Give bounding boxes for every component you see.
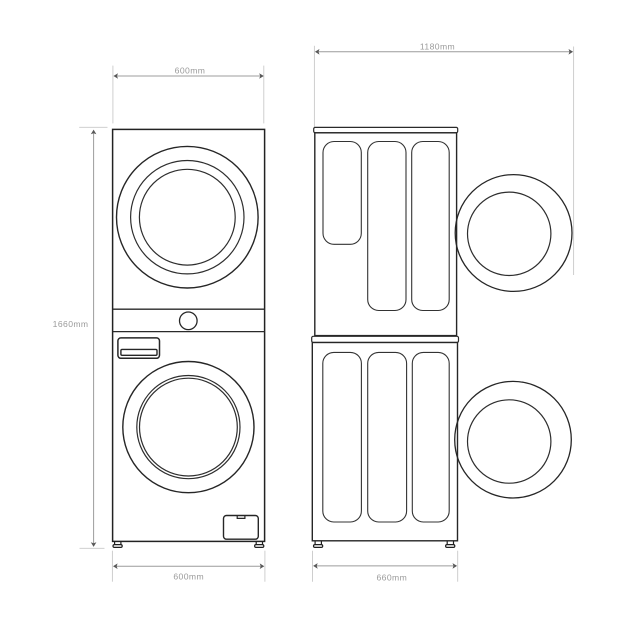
svg-text:1180mm: 1180mm xyxy=(420,41,455,51)
svg-text:600mm: 600mm xyxy=(175,65,206,75)
svg-text:600mm: 600mm xyxy=(173,572,204,582)
svg-text:1660mm: 1660mm xyxy=(53,319,89,329)
svg-text:660mm: 660mm xyxy=(376,572,407,582)
